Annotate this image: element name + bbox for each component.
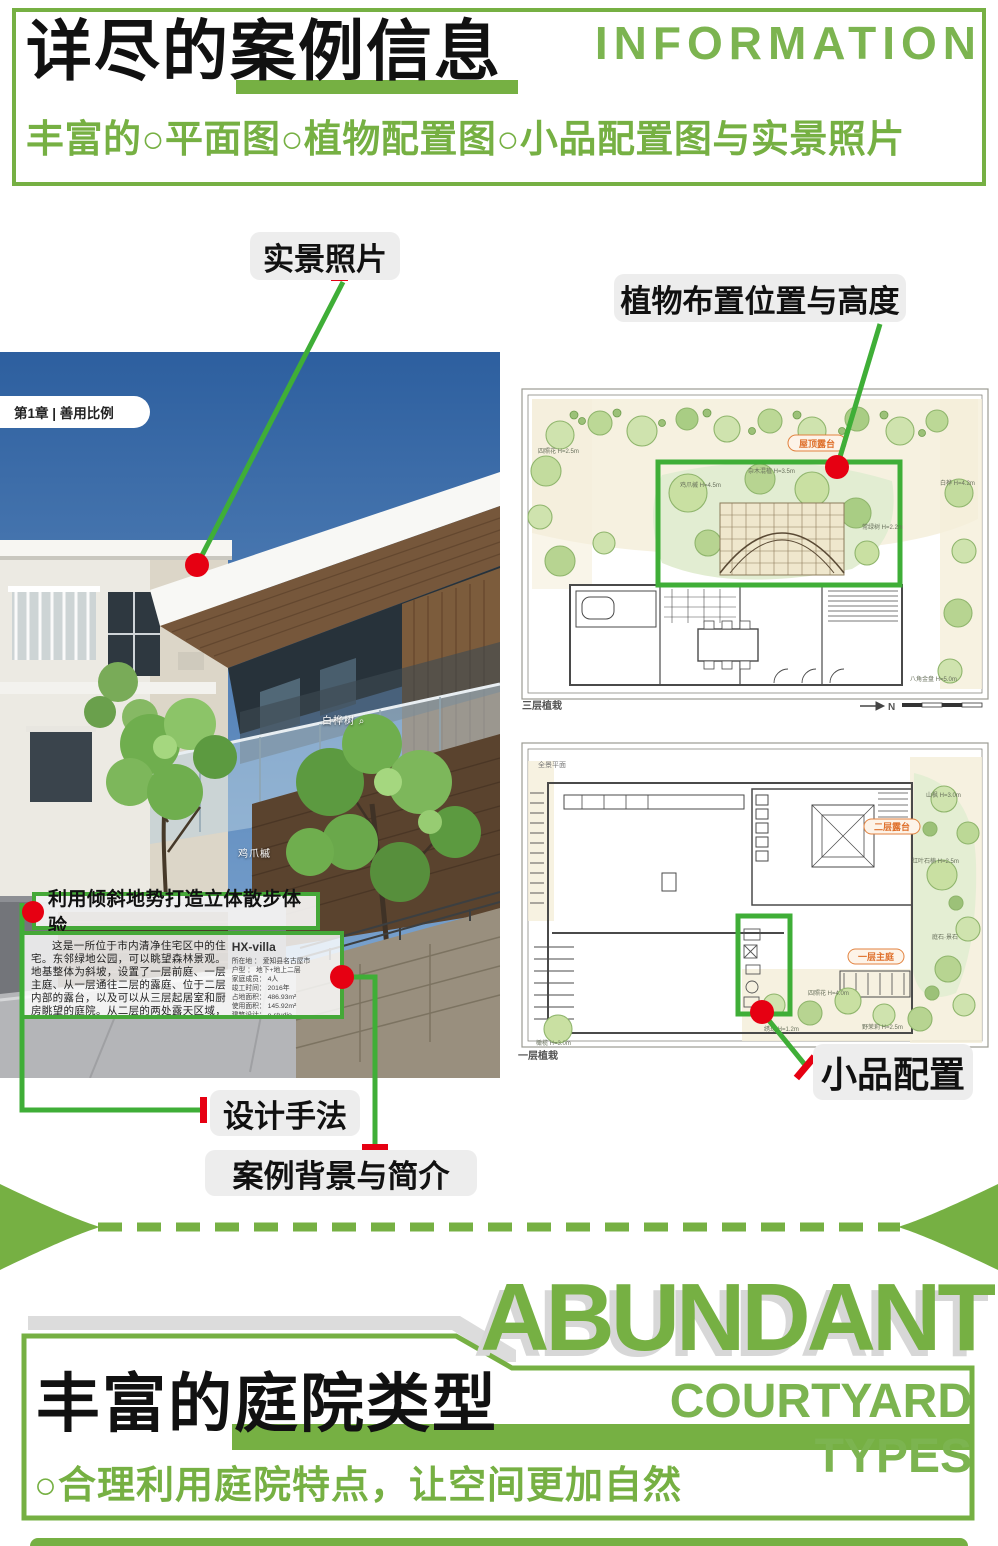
callout-ornament-layout-label: 小品配置 (821, 1046, 965, 1098)
scale-bar (902, 703, 982, 707)
abundant-title: ABUNDANT (420, 1272, 992, 1364)
svg-text:屋顶露台: 屋顶露台 (799, 438, 835, 449)
plan-annotation: 四照花 H=4.0m (808, 989, 849, 997)
plan-caption: 三层植栽 (522, 699, 562, 712)
header-title: 详尽的案例信息 (26, 14, 502, 92)
plan-annotation: 山枫 H=3.0m (926, 791, 961, 799)
svg-text:二层露台: 二层露台 (874, 821, 910, 832)
callout-photo-label: 实景照片 (263, 234, 387, 279)
plant-tag-label: 白桦树 (322, 716, 355, 727)
callout-case-background: 案例背景与简介 (205, 1150, 477, 1196)
callout-plant-layout-label: 植物布置位置与高度 (621, 276, 900, 321)
pergola-trellis (720, 503, 844, 575)
plan-annotation: 八角金盘 H=5.0m (910, 675, 957, 683)
case-title: 利用倾斜地势打造立体散步体验 (48, 884, 316, 938)
plan-annotation: 常绿树 H=2.2m (862, 523, 903, 531)
terrace-badge-upper: 二层露台 (864, 819, 920, 834)
spec-line: 占地面积： 486.93m² (232, 993, 333, 1002)
case-title-box: 利用倾斜地势打造立体散步体验 (32, 892, 320, 930)
plan-annotation: 白桦 H=4.2m (940, 479, 975, 487)
main-garden-badge-lower: 一层主庭 (848, 949, 904, 964)
case-paragraph: 这是一所位于市内清净住宅区中的住宅。东邻绿地公园，可以眺望森林景观。地基整体为斜… (31, 940, 226, 1010)
plan-annotation: 橄榄 H=3.0m (536, 1039, 571, 1047)
spec-line: 家庭成员： 4人 (232, 975, 333, 984)
callout-plant-layout: 植物布置位置与高度 (614, 274, 906, 322)
svg-text:一层主庭: 一层主庭 (858, 951, 895, 962)
svg-text:N: N (888, 702, 895, 713)
plan-annotation: 庭石·景石 (932, 933, 958, 941)
header-title-en: INFORMATION (470, 16, 982, 70)
plant-tag: 鸡爪槭 (238, 845, 271, 860)
plan-house (570, 585, 902, 685)
plan-first-floor: 二层露台 一层主庭 一层植栽 全景平面 山枫 H=3.0m红叶石楠 H=2.5m… (512, 733, 996, 1063)
header-subtitle: 丰富的○平面图○植物配置图○小品配置图与实景照片 (26, 108, 978, 163)
promo-page: 详尽的案例信息 INFORMATION 丰富的○平面图○植物配置图○小品配置图与… (0, 0, 998, 1546)
plan-annotation: 鸡爪槭 H=4.5m (680, 481, 721, 489)
svg-text:第1章 | 善用比例: 第1章 | 善用比例 (14, 405, 114, 421)
plan-annotation: 红叶石楠 H=2.5m (912, 857, 959, 865)
project-specs: 所在地 ： 爱知县名古屋市户型 ： 地下+地上二层家庭成员： 4人竣工时间： 2… (232, 957, 333, 1019)
chapter-tag: 第1章 | 善用比例 (0, 396, 150, 428)
divider-left-wedge (0, 1184, 100, 1270)
plan-annotation: 杂木混植 H=3.5m (748, 467, 795, 475)
plant-tag: 白桦树 ⌕ (322, 712, 365, 727)
plan-annotation: 野茉莉 H=2.5m (862, 1023, 903, 1031)
spec-line: 竣工时间： 2016年 (232, 984, 333, 993)
callout-photo: 实景照片 (250, 232, 400, 280)
project-name: HX-villa (232, 940, 333, 954)
callout-case-background-label: 案例背景与简介 (233, 1151, 450, 1196)
case-project-info: HX-villa 所在地 ： 爱知县名古屋市户型 ： 地下+地上二层家庭成员： … (232, 940, 333, 1010)
plan-annotation: 绣球 H=1.2m (764, 1025, 799, 1033)
plan-annotation: 四照花 H=2.5m (538, 447, 579, 455)
courtyard-title: 丰富的庭院类型 (36, 1362, 498, 1448)
plant-tag-label: 鸡爪槭 (238, 849, 271, 860)
section-divider (0, 1182, 998, 1274)
plan-caption: 一层植栽 (518, 1049, 558, 1062)
plan-third-floor: 屋顶露台 三层植栽 N 四照花 H=2.5m鸡爪槭 H=4.5m杂木混植 H=3… (512, 375, 996, 715)
spec-line: 所在地 ： 爱知县名古屋市 (232, 957, 333, 966)
divider-right-wedge (898, 1184, 998, 1270)
courtyard-subtitle: ○合理利用庭院特点，让空间更加自然 (34, 1454, 682, 1509)
callout-ornament-layout: 小品配置 (813, 1044, 973, 1100)
spec-line: 建筑设计： e-studio (232, 1011, 333, 1019)
case-intro-box: 这是一所位于市内清净住宅区中的住宅。东邻绿地公园，可以眺望森林景观。地基整体为斜… (20, 931, 344, 1019)
magnifier-icon: ⌕ (359, 716, 366, 727)
spec-line: 使用面积： 145.92m² (232, 1002, 333, 1011)
callout-design-technique-label: 设计手法 (223, 1091, 347, 1136)
plan-note: 全景平面 (538, 760, 566, 769)
roof-terrace-badge: 屋顶露台 (788, 435, 846, 451)
spec-line: 户型 ： 地下+地上二层 (232, 966, 333, 975)
callout-design-technique: 设计手法 (210, 1090, 360, 1136)
